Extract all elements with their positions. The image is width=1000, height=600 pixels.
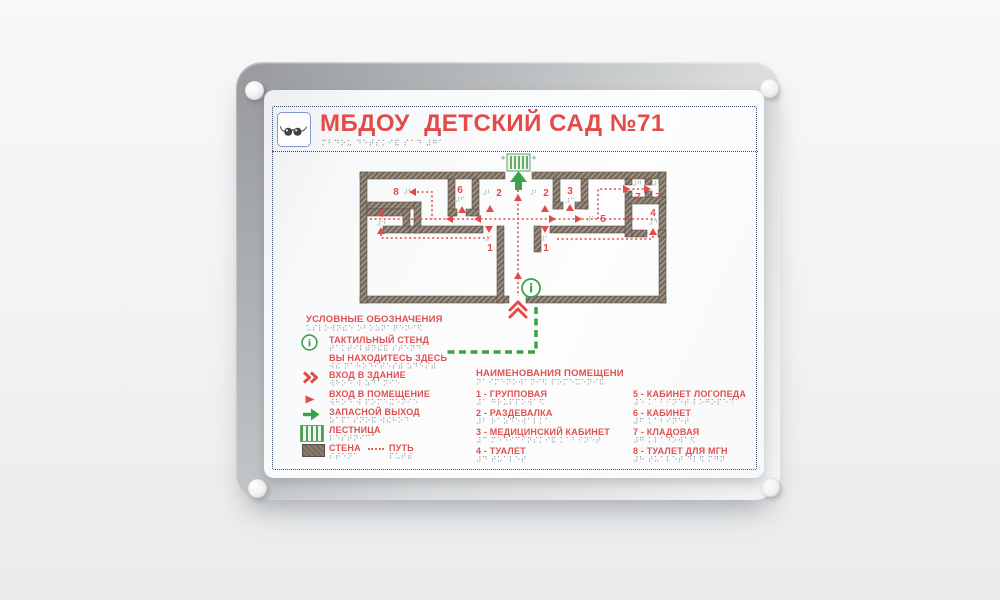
sign-title-braille: ⠍⠃⠙⠕⠥ ⠙⠑⠞⠎⠅⠊⠯ ⠎⠁⠙ ⠼⠛⠁ — [321, 139, 445, 148]
legend-item-braille: ⠞⠁⠅⠞⠊⠇⠾⠝⠮⠯ ⠎⠞⠑⠝⠙ — [329, 344, 422, 353]
sign-panel: МБДОУ ДЕТСКИЙ САД №71 ⠍⠃⠙⠕⠥ ⠙⠑⠞⠎⠅⠊⠯ ⠎⠁⠙ … — [264, 90, 764, 478]
room-list-item-braille: ⠼⠑ ⠅⠁⠃⠊⠝⠑⠞ ⠇⠕⠛⠕⠏⠑⠙⠁ — [633, 398, 741, 407]
photo-background: МБДОУ ДЕТСКИЙ САД №71 ⠍⠃⠙⠕⠥ ⠙⠑⠞⠎⠅⠊⠯ ⠎⠁⠙ … — [0, 0, 1000, 600]
legend-item-braille: ⠺⠓⠕⠙ ⠺ ⠵⠙⠁⠝⠊⠑ — [329, 379, 401, 388]
title-divider — [272, 151, 758, 152]
standoff-screw — [761, 478, 780, 497]
stairs-icon — [300, 425, 324, 442]
triangle-right-icon — [305, 391, 315, 409]
room-list-item-braille: ⠼⠙ ⠞⠥⠁⠇⠑⠞ — [476, 455, 527, 464]
room-list-item-braille: ⠼⠉ ⠍⠑⠙⠊⠉⠊⠝⠎⠅⠊⠯ ⠅⠁⠃⠊⠝⠑⠞ — [476, 436, 602, 445]
room-list-item-braille: ⠼⠛ ⠅⠇⠁⠙⠕⠺⠁⠫ — [633, 436, 696, 445]
legend-header-braille: ⠥⠎⠇⠕⠺⠝⠮⠑ ⠕⠃⠕⠵⠝⠁⠟⠑⠝⠊⠫ — [306, 324, 423, 333]
sign-title: МБДОУ ДЕТСКИЙ САД №71 — [320, 110, 665, 138]
room-list-item-braille: ⠼⠃ ⠗⠁⠵⠙⠑⠺⠁⠇⠅⠁ — [476, 417, 551, 426]
rooms-header-braille: ⠝⠁⠊⠍⠑⠝⠕⠺⠁⠝⠊⠫ ⠏⠕⠍⠑⠭⠑⠝⠊⠯ — [476, 378, 605, 387]
green-arrow-right-icon — [302, 408, 320, 426]
legend-item-braille: ⠏⠥⠞⠾ — [389, 452, 413, 461]
route-dash-icon — [368, 448, 384, 450]
double-chevron-right-icon — [302, 371, 320, 389]
svg-text:i: i — [308, 338, 311, 349]
wall-swatch-icon — [302, 444, 325, 457]
standoff-screw — [248, 479, 267, 498]
legend-item-braille: ⠇⠑⠎⠞⠝⠊⠉⠁ — [329, 434, 377, 443]
info-circle-icon: i — [301, 334, 318, 356]
legend-item-braille: ⠺⠓⠕⠙ ⠺ ⠏⠕⠍⠑⠭⠑⠝⠊⠑ — [329, 398, 419, 407]
room-list-item-braille: ⠼⠓ ⠞⠥⠁⠇⠑⠞ ⠙⠇⠫ ⠍⠛⠝ — [633, 455, 726, 464]
room-list-item-braille: ⠼⠁ ⠛⠗⠥⠏⠏⠕⠺⠁⠫ — [476, 398, 545, 407]
room-list-item-braille: ⠼⠋ ⠅⠁⠃⠊⠝⠑⠞ — [633, 417, 690, 426]
legend-item-braille: ⠵⠁⠏⠁⠎⠝⠕⠯ ⠺⠮⠓⠕⠙ — [329, 416, 410, 425]
eyeglasses-icon — [277, 112, 311, 147]
legend-item-braille: ⠎⠞⠑⠝⠁ — [329, 452, 359, 461]
standoff-screw — [245, 81, 264, 100]
